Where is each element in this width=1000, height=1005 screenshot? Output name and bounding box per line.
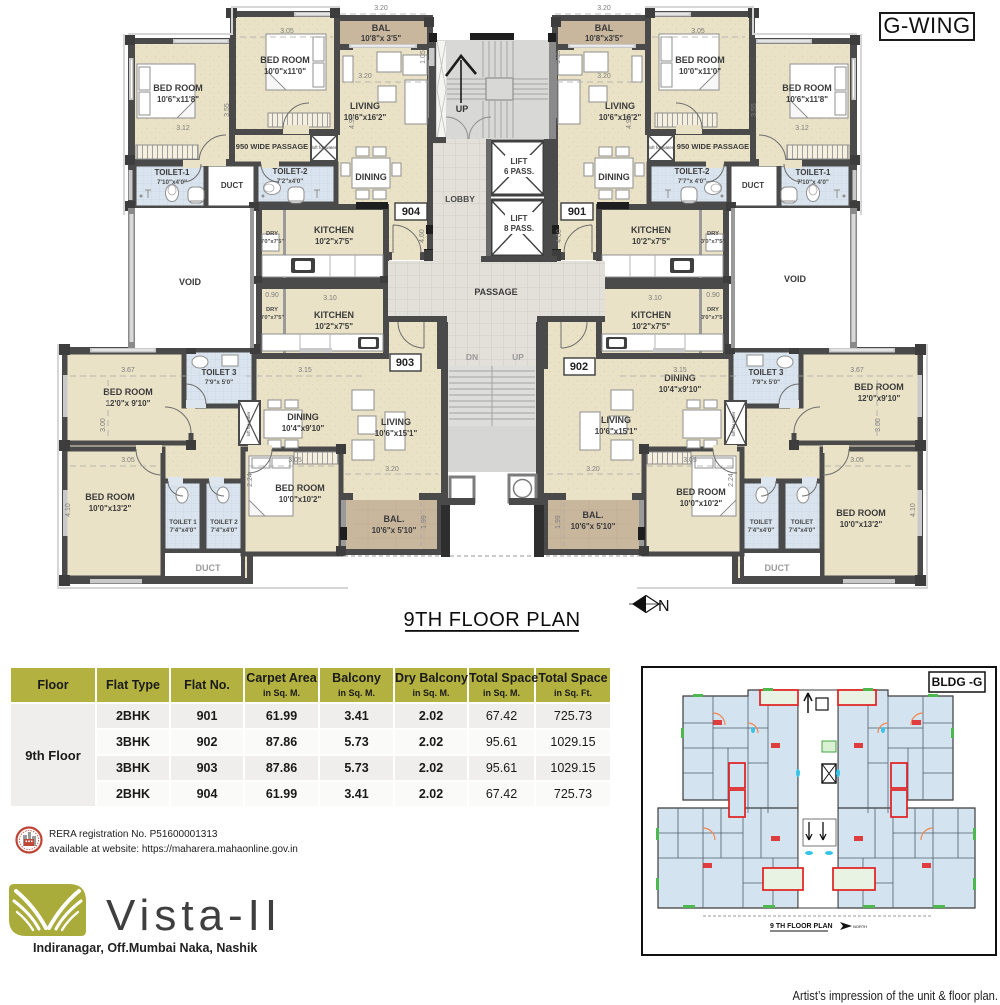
svg-text:BED ROOM: BED ROOM — [675, 55, 725, 65]
svg-text:VOID: VOID — [179, 277, 202, 287]
svg-text:KITCHEN: KITCHEN — [314, 310, 354, 320]
svg-text:3.20: 3.20 — [374, 5, 388, 12]
svg-text:TOILET 3: TOILET 3 — [749, 368, 785, 377]
svg-text:LIFT: LIFT — [511, 214, 528, 223]
svg-text:2.24: 2.24 — [728, 473, 735, 487]
svg-text:DRY: DRY — [266, 307, 278, 313]
svg-text:3.00: 3.00 — [100, 418, 107, 432]
svg-text:3.05: 3.05 — [288, 457, 302, 464]
svg-text:loft for water: loft for water — [649, 145, 674, 150]
svg-text:loft for water: loft for water — [246, 411, 251, 436]
svg-text:BAL.: BAL. — [384, 514, 405, 524]
svg-text:12'0"x 9'10": 12'0"x 9'10" — [106, 399, 151, 408]
svg-text:KITCHEN: KITCHEN — [314, 225, 354, 235]
svg-text:10'0"x11'0": 10'0"x11'0" — [679, 67, 721, 76]
svg-text:DINING: DINING — [355, 172, 387, 182]
svg-text:TOILET 1: TOILET 1 — [169, 519, 197, 526]
svg-text:TOILET-2: TOILET-2 — [273, 167, 309, 176]
svg-text:901: 901 — [568, 206, 586, 218]
svg-text:TOILET: TOILET — [750, 519, 772, 526]
svg-text:BED ROOM: BED ROOM — [676, 487, 726, 497]
svg-text:NORTH: NORTH — [853, 924, 867, 929]
svg-text:10'0"x13'2": 10'0"x13'2" — [89, 504, 132, 513]
svg-text:N: N — [658, 598, 670, 615]
svg-text:3.67: 3.67 — [850, 367, 864, 374]
svg-text:10'4"x9'10": 10'4"x9'10" — [282, 424, 325, 433]
svg-text:LIVING: LIVING — [350, 101, 380, 111]
svg-text:4.92: 4.92 — [626, 115, 633, 129]
svg-text:3.20: 3.20 — [586, 466, 600, 473]
svg-text:3.00: 3.00 — [875, 418, 882, 432]
svg-text:TOILET-2: TOILET-2 — [675, 167, 711, 176]
svg-text:10'6"x15'1": 10'6"x15'1" — [375, 429, 418, 438]
svg-text:DUCT: DUCT — [221, 181, 243, 190]
svg-text:3.05: 3.05 — [121, 457, 135, 464]
svg-text:10'6"x11'8": 10'6"x11'8" — [786, 95, 828, 104]
svg-text:BAL.: BAL. — [583, 510, 604, 520]
svg-text:10'6"x11'8": 10'6"x11'8" — [157, 95, 199, 104]
svg-text:BAL: BAL — [372, 23, 391, 33]
svg-text:LIVING: LIVING — [381, 417, 411, 427]
svg-text:BED ROOM: BED ROOM — [85, 492, 135, 502]
svg-text:10'8"x3'5": 10'8"x3'5" — [585, 34, 623, 43]
svg-text:10'0"x11'0": 10'0"x11'0" — [264, 67, 306, 76]
svg-text:3.05: 3.05 — [691, 28, 705, 35]
svg-text:loft for water: loft for water — [731, 411, 736, 436]
svg-text:950 WIDE PASSAGE: 950 WIDE PASSAGE — [236, 142, 308, 151]
svg-text:BED ROOM: BED ROOM — [854, 382, 904, 392]
svg-text:KITCHEN: KITCHEN — [631, 225, 671, 235]
svg-text:3.20: 3.20 — [597, 5, 611, 12]
svg-text:BAL: BAL — [595, 23, 614, 33]
svg-text:DUCT: DUCT — [765, 563, 790, 573]
svg-text:7'10"x4'0": 7'10"x4'0" — [157, 179, 187, 186]
svg-text:1.99: 1.99 — [555, 515, 562, 529]
svg-text:10'2"x7'5": 10'2"x7'5" — [315, 322, 353, 331]
svg-text:TOILET: TOILET — [791, 519, 813, 526]
svg-text:BED ROOM: BED ROOM — [275, 483, 325, 493]
svg-text:G-WING: G-WING — [883, 13, 970, 38]
svg-text:3'0"x7'5": 3'0"x7'5" — [701, 315, 726, 321]
svg-text:7'9"x 5'0": 7'9"x 5'0" — [752, 379, 780, 386]
svg-text:3.55: 3.55 — [224, 103, 231, 117]
svg-text:0.90: 0.90 — [706, 292, 720, 299]
svg-text:10'2"x7'5": 10'2"x7'5" — [315, 237, 353, 246]
svg-text:TOILET-1: TOILET-1 — [796, 168, 832, 177]
svg-text:4.92: 4.92 — [349, 115, 356, 129]
svg-text:KITCHEN: KITCHEN — [631, 310, 671, 320]
svg-text:10'4"x9'10": 10'4"x9'10" — [659, 385, 702, 394]
svg-text:TOILET 2: TOILET 2 — [210, 519, 238, 526]
svg-text:10'8"x 3'5": 10'8"x 3'5" — [361, 34, 402, 43]
svg-text:3'0"x7'5": 3'0"x7'5" — [260, 315, 285, 321]
svg-text:7'4"x4'0": 7'4"x4'0" — [748, 527, 774, 534]
svg-text:DINING: DINING — [598, 172, 630, 182]
svg-text:PASSAGE: PASSAGE — [474, 287, 517, 297]
svg-text:3.10: 3.10 — [323, 295, 337, 302]
svg-text:3.05: 3.05 — [280, 28, 294, 35]
svg-text:TOILET-1: TOILET-1 — [155, 168, 191, 177]
svg-text:4.10: 4.10 — [65, 503, 72, 517]
svg-text:VOID: VOID — [784, 274, 807, 284]
svg-text:3.10: 3.10 — [648, 295, 662, 302]
svg-text:3.12: 3.12 — [176, 125, 190, 132]
svg-text:LIVING: LIVING — [605, 101, 635, 111]
svg-text:BED ROOM: BED ROOM — [836, 508, 886, 518]
svg-text:3.15: 3.15 — [298, 367, 312, 374]
svg-text:LIFT: LIFT — [511, 157, 528, 166]
svg-text:BED ROOM: BED ROOM — [153, 83, 203, 93]
svg-text:903: 903 — [396, 357, 414, 369]
svg-text:DUCT: DUCT — [196, 563, 221, 573]
svg-text:DINING: DINING — [664, 373, 696, 383]
svg-text:2.24: 2.24 — [247, 473, 254, 487]
svg-text:10'6"x16'2": 10'6"x16'2" — [599, 113, 642, 122]
svg-text:4.60: 4.60 — [556, 229, 563, 243]
svg-text:9 TH FLOOR PLAN: 9 TH FLOOR PLAN — [770, 923, 833, 930]
svg-text:7'4"x4'0": 7'4"x4'0" — [211, 527, 237, 534]
svg-text:3.15: 3.15 — [673, 367, 687, 374]
svg-text:950 WIDE PASSAGE: 950 WIDE PASSAGE — [677, 142, 749, 151]
svg-text:DN: DN — [466, 352, 478, 362]
svg-text:1.05: 1.05 — [555, 50, 562, 64]
svg-text:10'0"x10'2": 10'0"x10'2" — [279, 495, 322, 504]
svg-text:BLDG -G: BLDG -G — [932, 675, 983, 689]
svg-text:7'7"x 4'0": 7'7"x 4'0" — [678, 178, 706, 185]
svg-text:3.20: 3.20 — [597, 73, 611, 80]
svg-text:902: 902 — [570, 361, 588, 373]
svg-text:9TH FLOOR PLAN: 9TH FLOOR PLAN — [403, 609, 580, 631]
svg-text:7'10"x 4'0": 7'10"x 4'0" — [797, 179, 829, 186]
svg-text:3.67: 3.67 — [121, 367, 135, 374]
svg-text:DRY: DRY — [707, 231, 719, 237]
svg-text:6 PASS.: 6 PASS. — [504, 167, 534, 176]
svg-text:904: 904 — [402, 206, 421, 218]
svg-text:3.55: 3.55 — [751, 103, 758, 117]
svg-text:3'0"x7'5": 3'0"x7'5" — [260, 239, 285, 245]
svg-text:loft for water: loft for water — [312, 145, 337, 150]
svg-text:7'4"x4'0": 7'4"x4'0" — [170, 527, 196, 534]
svg-text:DRY: DRY — [266, 231, 278, 237]
svg-text:DINING: DINING — [287, 412, 319, 422]
svg-text:0.90: 0.90 — [265, 292, 279, 299]
svg-text:3.20: 3.20 — [358, 73, 372, 80]
svg-text:3.05: 3.05 — [683, 457, 697, 464]
svg-text:10'6"x 5'10": 10'6"x 5'10" — [372, 526, 417, 535]
svg-text:3.20: 3.20 — [385, 466, 399, 473]
svg-text:BED ROOM: BED ROOM — [782, 83, 832, 93]
svg-text:1.05: 1.05 — [420, 50, 427, 64]
svg-text:10'0"x13'2": 10'0"x13'2" — [840, 520, 883, 529]
svg-text:4.10: 4.10 — [910, 503, 917, 517]
svg-text:4.60: 4.60 — [419, 229, 426, 243]
svg-text:DUCT: DUCT — [742, 181, 764, 190]
svg-text:10'0"x10'2": 10'0"x10'2" — [680, 499, 723, 508]
svg-text:8 PASS.: 8 PASS. — [504, 224, 534, 233]
svg-text:TOILET 3: TOILET 3 — [202, 368, 238, 377]
svg-text:10'6"x 5'10": 10'6"x 5'10" — [571, 522, 616, 531]
svg-text:LOBBY: LOBBY — [445, 194, 475, 204]
svg-text:DRY: DRY — [707, 307, 719, 313]
svg-text:7'4"x4'0": 7'4"x4'0" — [789, 527, 815, 534]
svg-text:10'2"x7'5": 10'2"x7'5" — [632, 237, 670, 246]
svg-text:LIVING: LIVING — [601, 415, 631, 425]
svg-text:1.99: 1.99 — [421, 515, 428, 529]
svg-text:12'0"x9'10": 12'0"x9'10" — [858, 394, 901, 403]
svg-text:BED ROOM: BED ROOM — [103, 387, 153, 397]
svg-text:BED ROOM: BED ROOM — [260, 55, 310, 65]
svg-text:10'6"x15'1": 10'6"x15'1" — [595, 427, 638, 436]
svg-text:10'2"x7'5": 10'2"x7'5" — [632, 322, 670, 331]
svg-text:UP: UP — [456, 104, 469, 114]
svg-text:3.05: 3.05 — [850, 457, 864, 464]
svg-text:3'0"x7'5": 3'0"x7'5" — [701, 239, 726, 245]
svg-text:UP: UP — [512, 352, 524, 362]
svg-text:3.12: 3.12 — [795, 125, 809, 132]
svg-text:7'2"x4'0": 7'2"x4'0" — [277, 178, 303, 185]
svg-text:7'9"x 5'0": 7'9"x 5'0" — [205, 379, 233, 386]
